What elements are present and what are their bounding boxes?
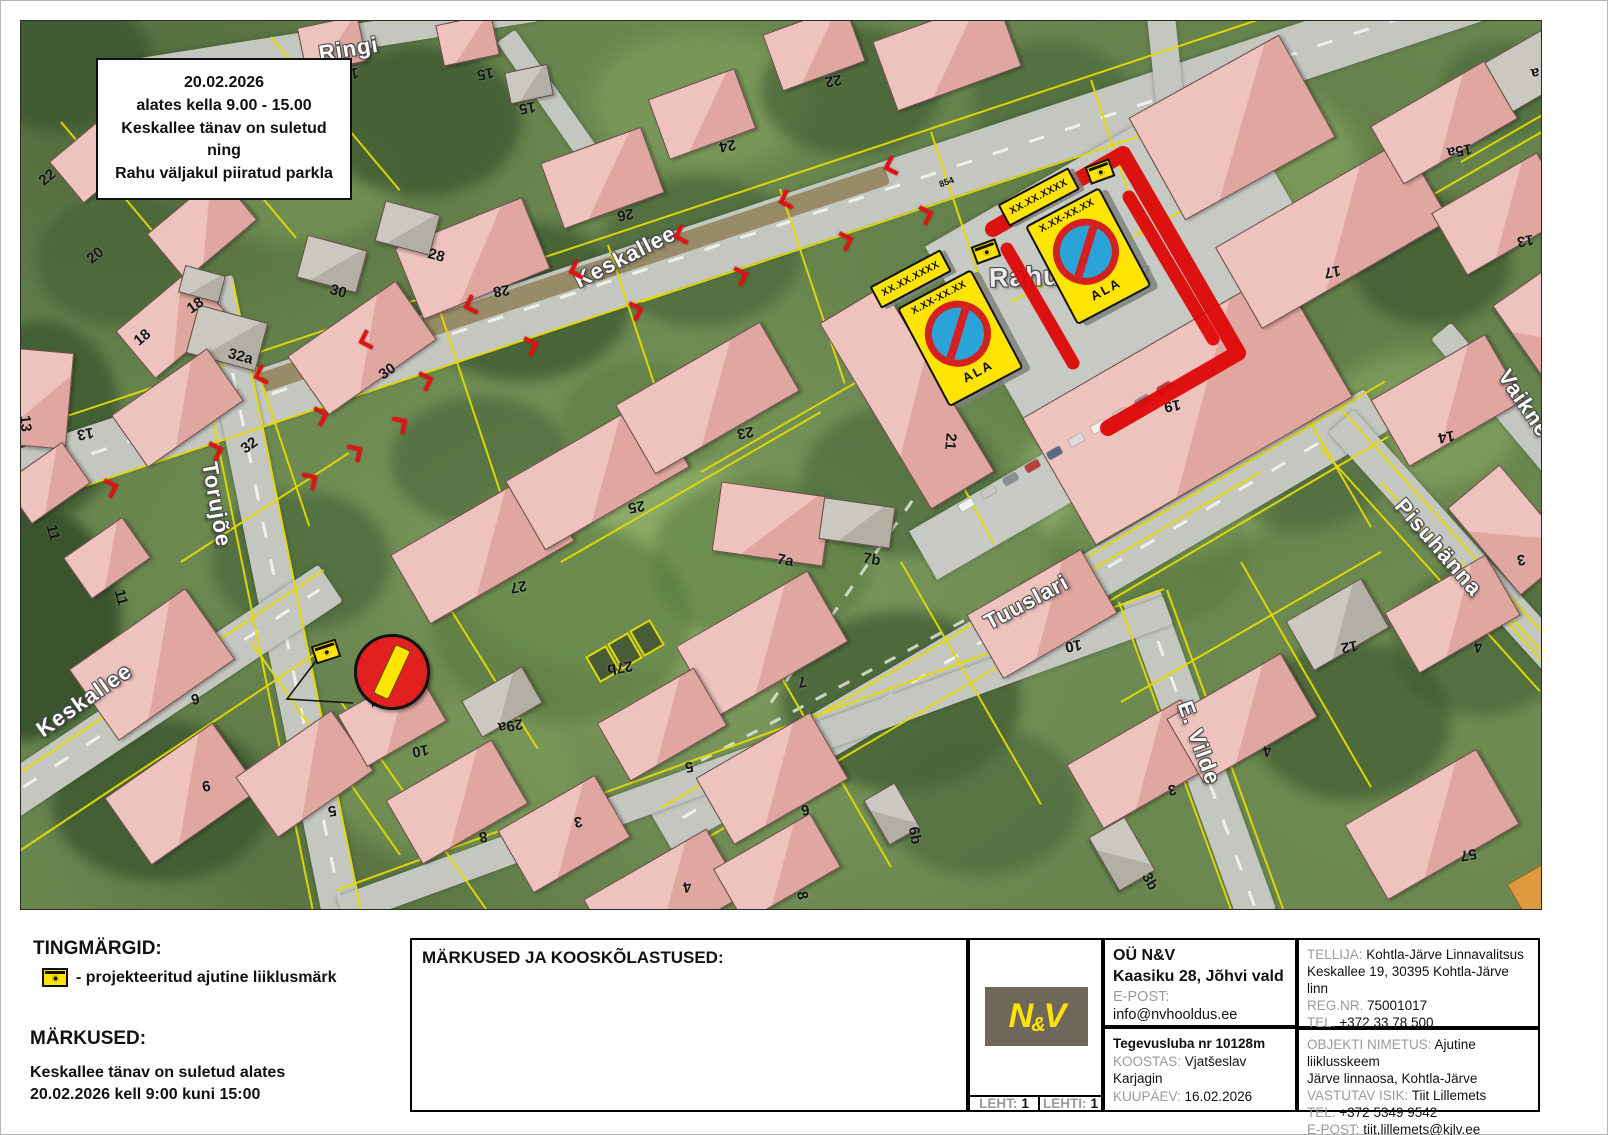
closure-info-box: 20.02.2026 alates kella 9.00 - 15.00 Kes…	[96, 58, 352, 200]
note-line: 20.02.2026 kell 9:00 kuni 15:00	[30, 1086, 260, 1104]
license-number: Tegevusluba nr 10128m	[1113, 1035, 1287, 1053]
company-cell: OÜ N&V Kaasiku 28, Jõhvi vald E-POST: in…	[1103, 938, 1297, 1027]
no-parking-bar-icon	[1074, 223, 1099, 281]
notes-title: MÄRKUSED:	[30, 1028, 146, 1050]
info-line: alates kella 9.00 - 15.00	[98, 95, 350, 118]
regnr-label: REG.NR.	[1307, 998, 1363, 1013]
responsible-name: Tiit Lillemets	[1412, 1088, 1487, 1103]
objekti-label: OBJEKTI NIMETUS:	[1307, 1037, 1432, 1052]
lehti-label: LEHTI:	[1043, 1096, 1087, 1111]
leht-label: LEHT:	[979, 1096, 1017, 1111]
no-entry-sign	[354, 634, 430, 710]
no-entry-bar-icon	[373, 644, 411, 700]
closure-direction-arrow-icon	[390, 417, 408, 435]
tel-label: TEL.	[1307, 1105, 1336, 1120]
logo-letter: N	[1009, 997, 1032, 1035]
date-value: 16.02.2026	[1185, 1089, 1253, 1104]
email-label: E-POST:	[1307, 1122, 1360, 1135]
sheet-number-cell: LEHT: 1	[968, 1095, 1040, 1112]
info-line: Keskallee tänav on suletud	[98, 118, 350, 141]
temp-sign-legend-icon	[42, 968, 68, 987]
note-line: Keskallee tänav on suletud alates	[30, 1064, 285, 1082]
kuupaev-label: KUUPÄEV:	[1113, 1089, 1181, 1104]
client-cell: TELLIJA: Kohtla-Järve Linnavalitsus Kesk…	[1297, 938, 1540, 1028]
regnr-value: 75001017	[1367, 998, 1427, 1013]
map: XX.XX.XXXX X.XX-XX.XX ALA XX.XX.XXXX X.X…	[20, 20, 1542, 910]
client-name: Kohtla-Järve Linnavalitsus	[1366, 947, 1524, 962]
company-logo: N&V	[985, 987, 1088, 1046]
legend-item-label: - projekteeritud ajutine liiklusmärk	[76, 969, 337, 987]
remarks-approvals-title: MÄRKUSED JA KOOSKÕLASTUSED:	[412, 940, 966, 976]
client-address: Keskallee 19, 30395 Kohtla-Järve linn	[1307, 963, 1530, 997]
info-line: Rahu väljakul piiratud parkla	[98, 163, 350, 186]
legend-item: - projekteeritud ajutine liiklusmärk	[42, 968, 337, 987]
leht-value: 1	[1021, 1096, 1029, 1111]
company-email: info@nvhooldus.ee	[1113, 1007, 1237, 1023]
no-parking-bar-icon	[946, 305, 971, 363]
tellija-label: TELLIJA:	[1307, 947, 1363, 962]
email-label: E-POST:	[1113, 989, 1169, 1005]
object-location: Järve linnaosa, Kohtla-Järve	[1307, 1070, 1530, 1087]
traffic-scheme-sheet: { "map": { "info_box": { "lines": ["20.0…	[0, 0, 1608, 1135]
company-address: Kaasiku 28, Jõhvi vald	[1113, 967, 1287, 988]
vastutav-label: VASTUTAV ISIK:	[1307, 1088, 1408, 1103]
koostas-label: KOOSTAS:	[1113, 1054, 1181, 1069]
closure-direction-arrow-icon	[345, 445, 363, 463]
legend-title: TINGMÄRGID:	[33, 938, 162, 960]
object-cell: OBJEKTI NIMETUS: Ajutine liiklusskeem Jä…	[1297, 1028, 1540, 1112]
company-name: OÜ N&V	[1113, 946, 1287, 967]
sheet-count-cell: LEHTI: 1	[1038, 1095, 1103, 1112]
logo-ampersand: &	[1031, 1014, 1043, 1036]
remarks-approvals-box: MÄRKUSED JA KOOSKÕLASTUSED:	[410, 938, 968, 1112]
info-line: 20.02.2026	[98, 72, 350, 95]
info-line: ning	[98, 140, 350, 163]
logo-letter: V	[1044, 997, 1065, 1035]
lehti-value: 1	[1090, 1096, 1098, 1111]
license-cell: Tegevusluba nr 10128m KOOSTAS: Vjatšesla…	[1103, 1027, 1297, 1112]
responsible-email: tiit.lillemets@kjlv.ee	[1363, 1122, 1480, 1135]
closure-direction-arrow-icon	[300, 473, 318, 491]
responsible-tel: +372 5349 9542	[1339, 1105, 1437, 1120]
